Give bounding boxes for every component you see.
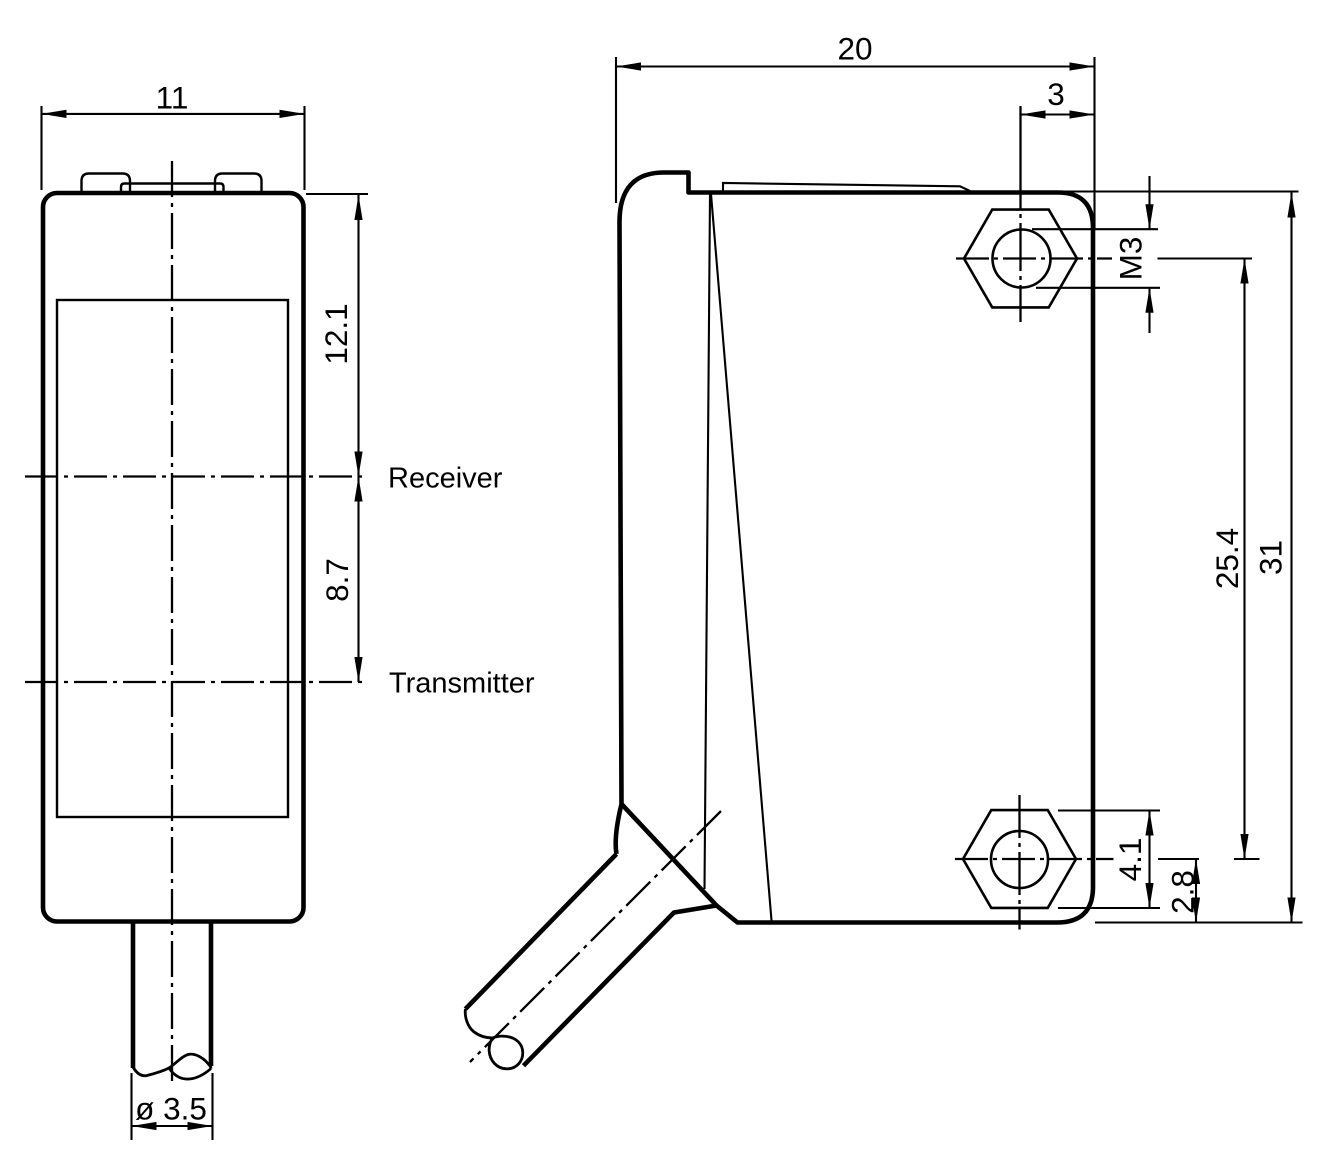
svg-text:11: 11 (156, 80, 189, 116)
svg-text:3: 3 (1047, 76, 1065, 112)
svg-text:4.1: 4.1 (1112, 838, 1148, 882)
svg-text:ø 3.5: ø 3.5 (135, 1091, 207, 1127)
svg-text:20: 20 (837, 31, 872, 67)
svg-text:25.4: 25.4 (1209, 528, 1245, 589)
svg-text:Receiver: Receiver (388, 463, 503, 495)
svg-text:8.7: 8.7 (319, 558, 355, 602)
svg-text:M3: M3 (1113, 237, 1149, 281)
svg-text:31: 31 (1253, 540, 1289, 575)
svg-text:Transmitter: Transmitter (389, 668, 535, 700)
svg-text:2.8: 2.8 (1165, 870, 1201, 914)
svg-text:12.1: 12.1 (318, 303, 354, 364)
